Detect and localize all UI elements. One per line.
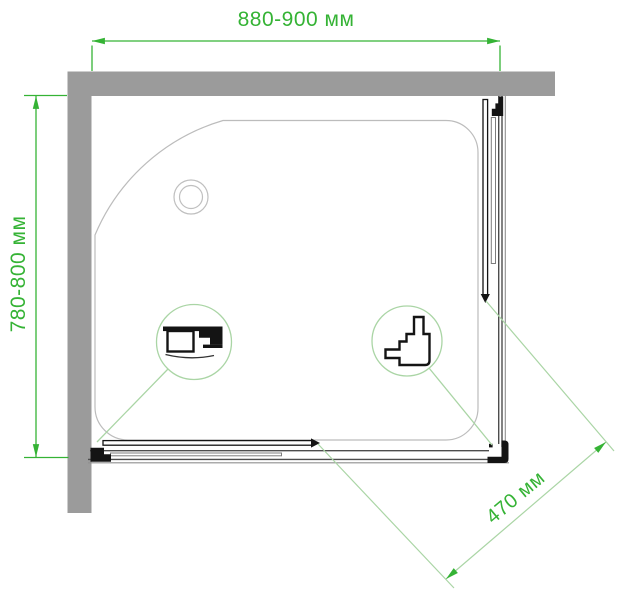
extension-line: [318, 444, 454, 588]
drain-icon: [174, 180, 208, 214]
right-fixed-half-panel: [491, 118, 495, 264]
top-hook-bracket: [492, 97, 503, 117]
bottom-fixed-half-panel: [111, 453, 282, 456]
door-arrow-icon: [481, 294, 490, 303]
corner-roller-profile-section-icon: [386, 317, 430, 365]
right-sliding-door: [481, 100, 490, 304]
left-stopper-bracket: [91, 448, 112, 462]
depth-dimension-label: 780-800 мм: [7, 216, 31, 333]
width-dimension: [92, 41, 500, 71]
top-wall: [68, 72, 556, 97]
detail-callouts: [97, 305, 492, 446]
bottom-rail: [88, 451, 509, 463]
drawing-canvas: [0, 0, 619, 600]
shower-enclosure-drawing: 880-900 мм 780-800 мм 470 мм: [0, 0, 619, 600]
width-dimension-label: 880-900 мм: [238, 8, 355, 32]
left-wall: [68, 72, 92, 514]
left-leader-line: [97, 369, 168, 442]
right-leader-line: [429, 368, 492, 445]
rail-profile-section-icon: [163, 327, 223, 358]
shower-tray-outline: [95, 121, 478, 441]
door-opening-dimension: [318, 301, 614, 588]
right-rail: [491, 96, 505, 463]
